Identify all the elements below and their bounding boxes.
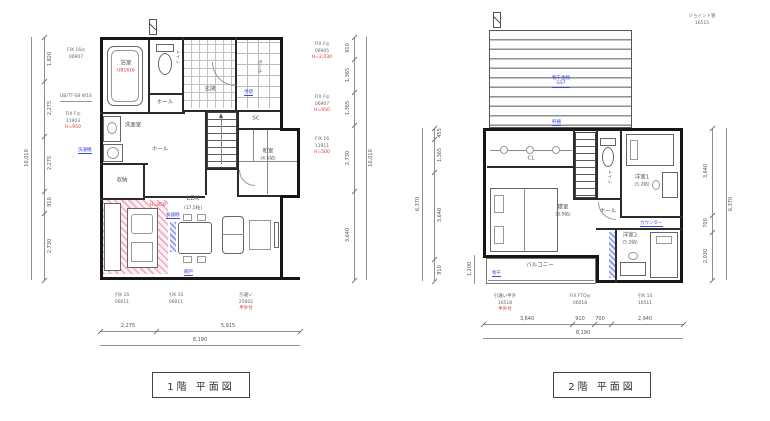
- dim-tick: [432, 279, 438, 285]
- dim-line: [474, 255, 475, 284]
- dim-value: 910: [575, 316, 585, 322]
- window-num: 06905: [315, 49, 329, 54]
- dim-total: 10,010: [24, 149, 30, 167]
- dim-line: [483, 324, 683, 325]
- wall: [100, 163, 148, 165]
- annotation-counter: カウンター: [640, 221, 663, 227]
- room-label-text: 浴室: [120, 61, 131, 67]
- room-label-wash: 洗面室: [125, 122, 142, 129]
- pillow-icon: [630, 140, 638, 160]
- stairs-2f: [575, 132, 596, 198]
- window-num: 11903: [66, 119, 80, 124]
- dining-table-icon: [178, 222, 212, 254]
- spec-note: UB/TT-SB W16: [60, 94, 92, 102]
- dim-line: [422, 128, 423, 281]
- window-code: FIX 16◎: [67, 48, 85, 53]
- room-label-hall-upper: ホール: [157, 99, 174, 106]
- floor2-title-box: 2階 平面図: [553, 372, 651, 398]
- roof-note-line2: GS7: [556, 81, 565, 86]
- wall: [620, 130, 622, 218]
- window-code: FIX F◎: [315, 42, 330, 47]
- toilet-bowl-icon: [602, 147, 614, 167]
- wall: [596, 130, 598, 200]
- dining-chair: [197, 214, 206, 221]
- room-label-hall-lower: ホール: [152, 146, 169, 153]
- dim-value: 2,275: [47, 156, 53, 170]
- wall: [148, 93, 182, 95]
- stairs-up-line: [221, 118, 222, 164]
- window-code: 引K 1S: [638, 294, 653, 299]
- vent-pipe-icon: [149, 19, 157, 35]
- room-label-room2: 洋室2 (5.2帖): [622, 233, 637, 248]
- dim-value: 5,915: [221, 323, 235, 329]
- window-label: 引K 1S 06011: [169, 293, 184, 306]
- floor2-title: 2階 平面図: [568, 378, 636, 393]
- stairs-up-arrow: [219, 113, 223, 118]
- room-label-entrance: 玄関: [204, 86, 215, 93]
- dining-chair: [183, 256, 192, 263]
- room-label-toilet: トイレ: [174, 50, 180, 64]
- dim-tick: [42, 278, 48, 284]
- wall: [280, 37, 283, 130]
- room-label-size: (5.2帖): [634, 183, 649, 188]
- joint-label: ジョイント管 16515: [689, 14, 716, 27]
- wall: [620, 216, 683, 218]
- wall: [237, 110, 280, 112]
- wall: [100, 112, 185, 114]
- dim-value: 2,940: [638, 316, 652, 322]
- balcony-rail-line: [488, 280, 594, 281]
- room-label-bath: 浴室 UB1616: [117, 61, 135, 76]
- room-label-code: UB1616: [117, 69, 135, 74]
- wall: [483, 128, 486, 258]
- window-code: 引K 1S: [169, 293, 184, 298]
- pillow-icon: [656, 236, 672, 244]
- wall: [487, 166, 575, 168]
- room-label-closet: 収納: [116, 177, 127, 184]
- washing-machine-drum: [107, 147, 119, 159]
- window-note: 半外付: [239, 306, 253, 311]
- rug-icon: [249, 220, 271, 250]
- washbasin-bowl: [107, 122, 117, 134]
- room-label-washitsu: 和室 (4.5帖): [260, 149, 275, 164]
- pillow-icon: [494, 226, 504, 244]
- window-num: 16511: [638, 301, 652, 306]
- dim-total: 8,190: [193, 337, 207, 343]
- tv-board-icon: [274, 222, 279, 248]
- dim-total: 10,010: [368, 149, 374, 167]
- window-num: 11911: [315, 144, 329, 149]
- window-code: 引K 1S: [115, 293, 130, 298]
- room-label-size: (5.2帖): [622, 241, 637, 246]
- window-code: 引違い半外: [494, 294, 517, 299]
- wall: [143, 163, 145, 200]
- dim-value: 2,030: [703, 249, 709, 263]
- kitchen-stove: [131, 242, 153, 262]
- wall: [237, 195, 280, 197]
- wall: [280, 195, 300, 198]
- window-code: FIX F◎: [315, 95, 330, 100]
- room-label-text: 寝室: [557, 205, 568, 211]
- annotation-screen: 網戸: [184, 270, 193, 276]
- dim-tick: [298, 329, 304, 335]
- window-label: FIX F◎ 06905 H=2,030: [312, 42, 332, 62]
- window-note: 半外付: [498, 307, 512, 312]
- floorplan-canvas: 浴室 UB1616 トイレ 洗面室 玄関 ポーチ ホール ホール SC 収納 和…: [0, 0, 770, 421]
- dim-line: [366, 37, 367, 280]
- dim-value: 910: [47, 197, 53, 207]
- dim-tick: [681, 322, 687, 328]
- wall: [483, 128, 683, 131]
- dim-line: [44, 37, 45, 280]
- dim-value: 2,275: [47, 101, 53, 115]
- dining-chair: [183, 214, 192, 221]
- dim-line: [100, 345, 300, 346]
- dim-value: 3,640: [520, 316, 534, 322]
- window-num: 06018: [573, 301, 587, 306]
- hanger-icon: [500, 146, 508, 154]
- dim-total: 6,370: [728, 197, 734, 211]
- dim-value: 455: [437, 128, 443, 138]
- bathtub-inner: [111, 50, 139, 102]
- window-num: 16518: [498, 301, 512, 306]
- room-label-text: 洋室1: [635, 175, 650, 181]
- dim-value: 1,365: [345, 101, 351, 115]
- dim-line: [712, 128, 713, 280]
- porch-tile-floor: [237, 40, 280, 108]
- wall: [237, 110, 239, 195]
- desk-icon: [620, 262, 646, 276]
- wall: [297, 128, 300, 198]
- dim-value: 1,365: [345, 68, 351, 82]
- annotation-stairs: 手摺: [244, 90, 253, 96]
- floor1-title-box: 1階 平面図: [152, 372, 250, 398]
- dim-value: 1,200: [467, 262, 473, 276]
- room-label-size: (4.5帖): [260, 157, 275, 162]
- window-label: FIX F◎ 11903 H=950: [65, 112, 81, 132]
- cupboard-hatch: [170, 222, 176, 252]
- annotation-cupboard: 食器棚: [166, 213, 180, 219]
- window-num: 06907: [315, 102, 329, 107]
- sofa-cushion-line: [222, 234, 244, 235]
- annotation-eaves: 軒樋: [552, 120, 561, 126]
- room-label-bedroom: 寝室 (8.0帖): [555, 205, 570, 220]
- dim-value: 910: [437, 265, 443, 275]
- dim-value: 3,640: [437, 208, 443, 222]
- closet-hatch: [609, 232, 615, 278]
- toilet-bowl-icon: [158, 53, 172, 75]
- bed-split-line: [524, 189, 525, 251]
- window-num: 06011: [115, 300, 129, 305]
- hanger-icon: [526, 146, 534, 154]
- dim-value: 700: [703, 218, 709, 228]
- floor1-plan: 浴室 UB1616 トイレ 洗面室 玄関 ポーチ ホール ホール SC 収納 和…: [0, 0, 400, 421]
- wall: [237, 128, 280, 130]
- floor2-plan: 物干金物 GS7 軒樋 ジョイント管 16515 CL: [400, 0, 770, 421]
- dim-line: [100, 331, 300, 332]
- dim-value: 910: [345, 43, 351, 53]
- dim-value: 1,365: [437, 148, 443, 162]
- window-code: FIX F◎: [66, 112, 81, 117]
- toilet-tank: [600, 138, 616, 146]
- dim-value: 700: [595, 316, 605, 322]
- dim-total: 8,190: [576, 330, 590, 336]
- room-label-closet2f: CL: [528, 155, 535, 162]
- window-note: H=2,030: [312, 55, 332, 60]
- room-label-porch: ポーチ: [256, 60, 262, 74]
- desk-chair: [628, 252, 638, 260]
- annotation-hood: H=850: [150, 203, 166, 208]
- wall: [280, 195, 283, 280]
- dim-line: [354, 37, 355, 280]
- window-note: H=950: [65, 125, 81, 130]
- kitchen-sink: [131, 214, 153, 234]
- room-label-sc: SC: [252, 115, 259, 122]
- dining-chair: [197, 256, 206, 263]
- desk-icon: [662, 172, 678, 198]
- dim-tick: [352, 278, 358, 284]
- dim-total: 6,370: [415, 197, 421, 211]
- joint-code: ジョイント管: [689, 14, 716, 19]
- window-label: FIX FTO◎ 06018: [569, 294, 590, 307]
- dim-line: [31, 37, 32, 280]
- room-label-toilet2f: トイレ: [606, 170, 612, 184]
- toilet-tank: [156, 44, 174, 52]
- dim-tick: [710, 278, 716, 284]
- dim-value: 3,640: [703, 164, 709, 178]
- wall: [596, 228, 683, 230]
- window-note: H=500: [314, 150, 330, 155]
- wall: [596, 255, 599, 283]
- window-num: 25602: [239, 300, 253, 305]
- wall: [100, 277, 300, 280]
- window-label: 引K 1S 06011: [115, 293, 130, 306]
- wall: [615, 228, 617, 283]
- wall: [148, 40, 150, 112]
- window-label: FIX F◎ 06907 H=950: [314, 95, 330, 115]
- window-note: H=950: [314, 108, 330, 113]
- wall: [205, 168, 237, 170]
- joint-num: 16515: [695, 21, 709, 26]
- dim-value: 2,275: [121, 323, 135, 329]
- dim-value: 2,730: [345, 151, 351, 165]
- kitchen-side-counter: [104, 203, 121, 271]
- window-label: 引違い 25602 半外付: [239, 293, 253, 313]
- window-label: 引違い半外 16518 半外付: [494, 294, 517, 314]
- stairs-1f: [207, 112, 237, 168]
- floor1-title: 1階 平面図: [167, 378, 235, 393]
- dim-line: [726, 128, 727, 280]
- pillow-icon: [494, 195, 504, 213]
- desk-chair: [652, 180, 660, 190]
- window-code: FIX FTO◎: [569, 294, 590, 299]
- dim-value: 1,820: [47, 52, 53, 66]
- window-num: 06011: [169, 300, 183, 305]
- room-label-size: (17.5帖): [184, 206, 202, 211]
- room-label-text: 洋室2: [623, 233, 638, 239]
- wall: [680, 128, 683, 283]
- hall-door-arc: [598, 202, 616, 220]
- dim-value: 3,640: [345, 228, 351, 242]
- room-label-room1: 洋室1 (5.2帖): [634, 175, 649, 190]
- annotation-laundry: 洗濯機: [78, 148, 92, 154]
- annotation-drying: 物干: [492, 271, 501, 277]
- hanger-icon: [552, 146, 560, 154]
- wall: [596, 280, 683, 283]
- room-label-balcony: バルコニー: [526, 262, 553, 269]
- window-num: 06907: [69, 55, 83, 60]
- room-label-text: 和室: [262, 149, 273, 155]
- sofa-icon: [222, 216, 244, 254]
- tatami-line: [253, 130, 254, 161]
- window-label: 引K 1S 16511: [638, 294, 653, 307]
- dim-line: [483, 338, 683, 339]
- room-label-size: (8.0帖): [555, 213, 570, 218]
- vent-pipe-icon: [493, 12, 501, 28]
- window-label: FIX 16◎ 06907: [67, 48, 85, 61]
- washitsu-door-arc: [239, 170, 255, 186]
- room-label-ldk: LDK (17.5帖): [184, 194, 202, 212]
- window-label: FIX 16 11911 H=500: [314, 137, 330, 157]
- annotation-roof: 物干金物 GS7: [552, 76, 570, 88]
- room-label-text: LDK: [187, 194, 200, 202]
- window-code: 引違い: [239, 293, 253, 298]
- window-code: FIX 16: [315, 137, 329, 142]
- dim-value: 2,730: [47, 239, 53, 253]
